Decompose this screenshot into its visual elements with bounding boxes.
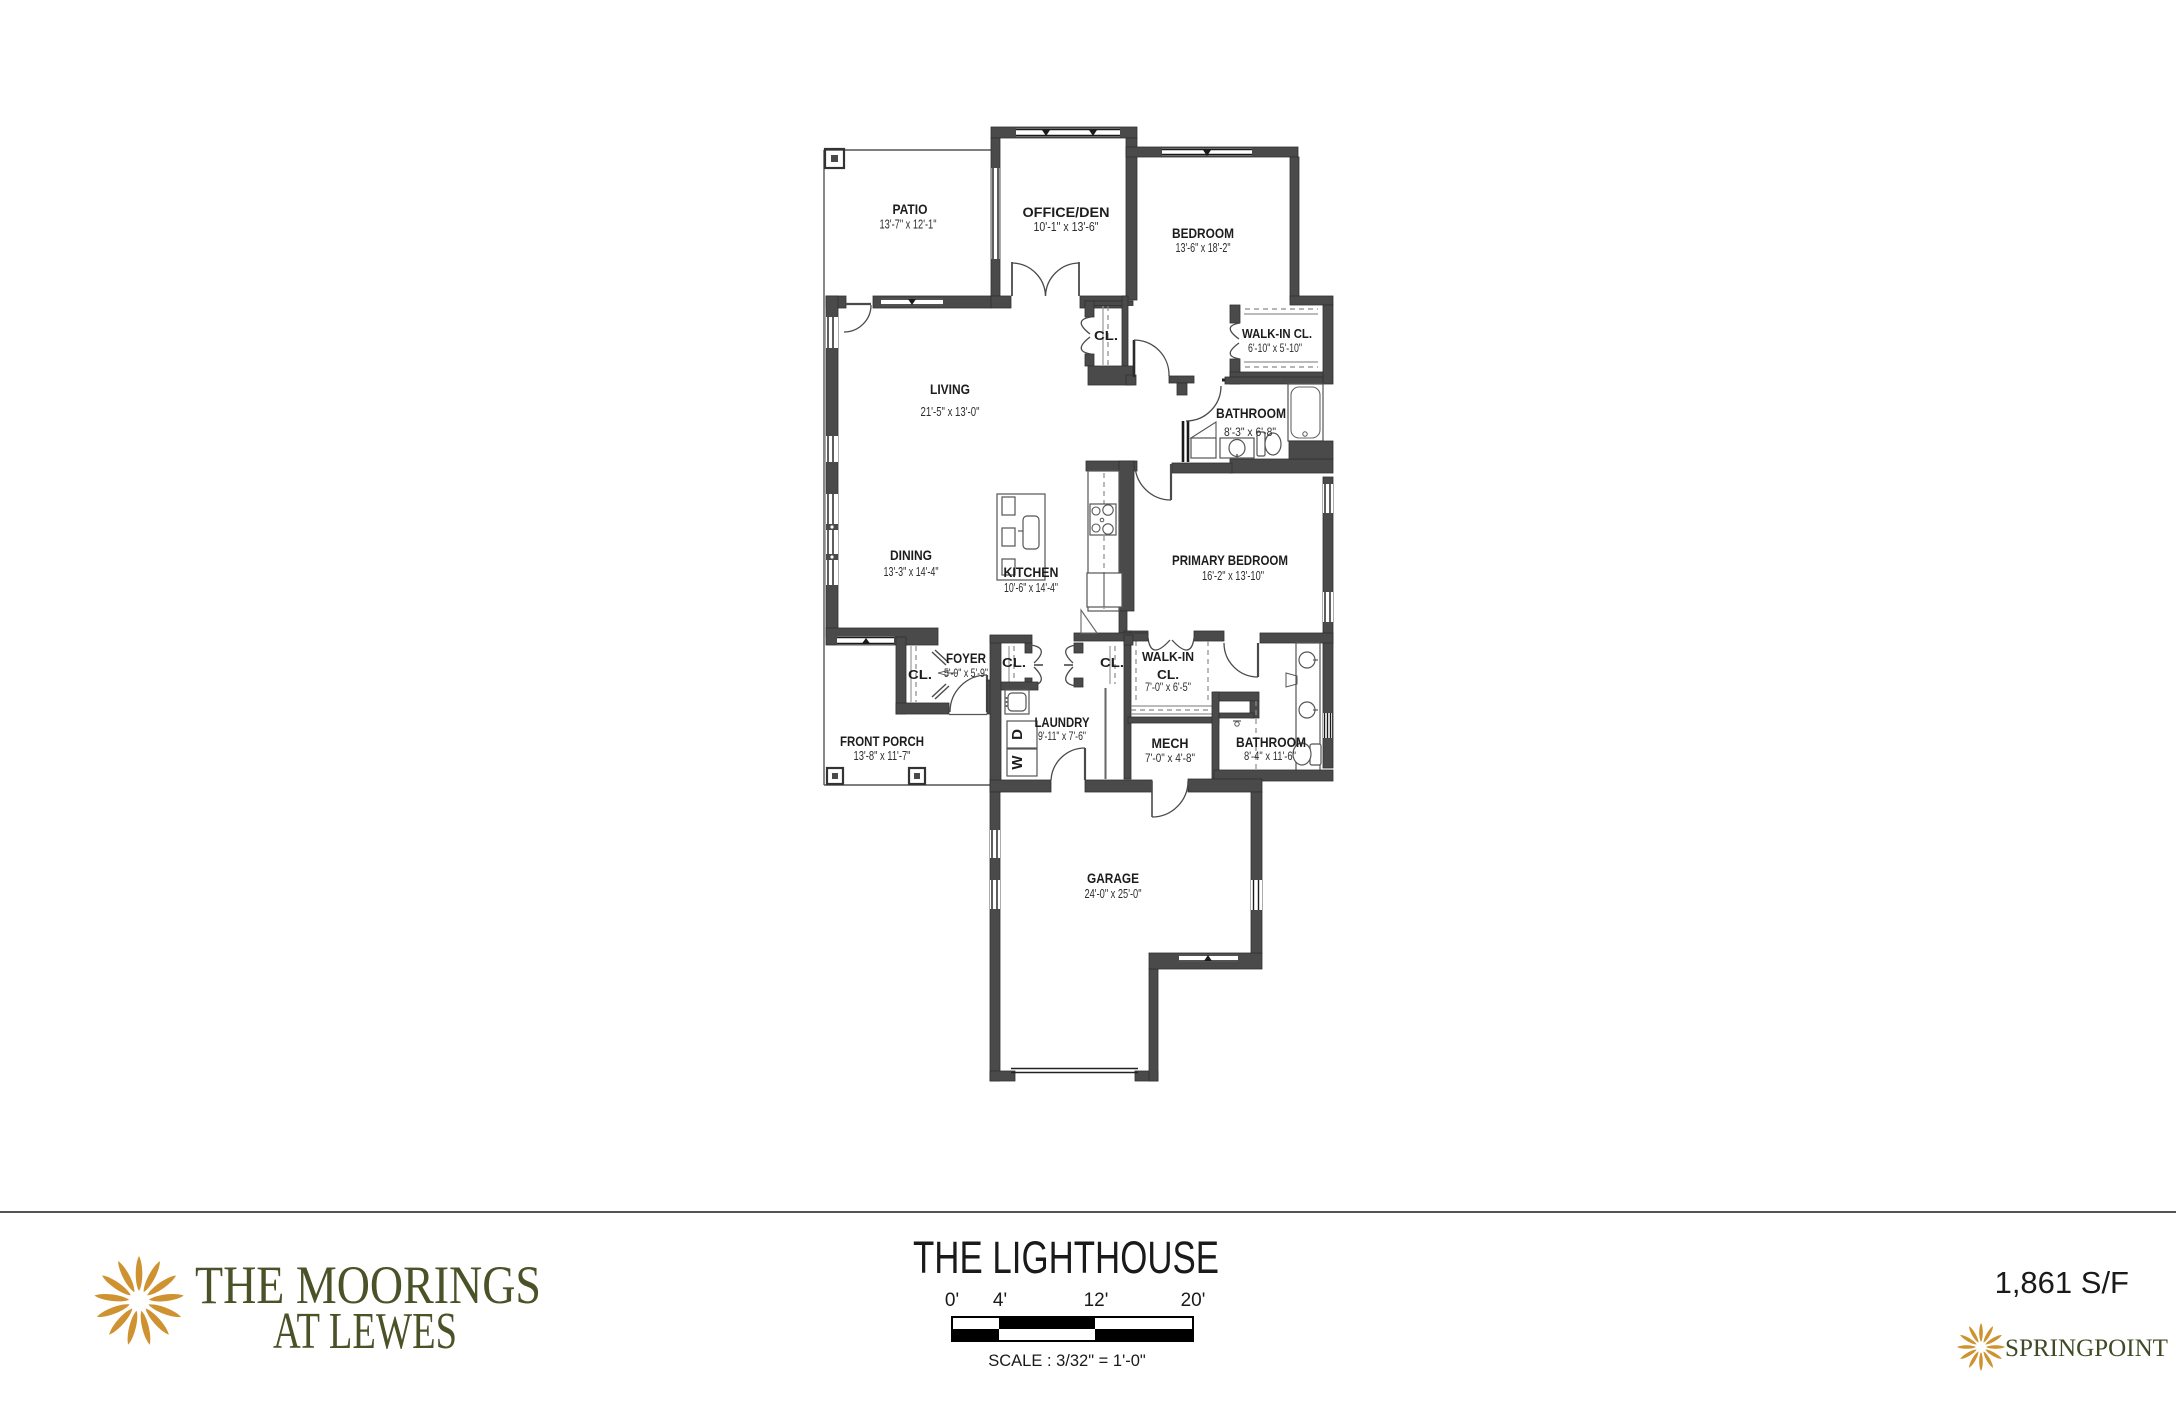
- svg-text:1,861 S/F: 1,861 S/F: [1995, 1265, 2129, 1300]
- svg-text:PRIMARY BEDROOM: PRIMARY BEDROOM: [1172, 552, 1288, 568]
- svg-text:12': 12': [1084, 1290, 1109, 1311]
- svg-text:CL.: CL.: [1094, 328, 1118, 343]
- svg-text:KITCHEN: KITCHEN: [1004, 564, 1059, 580]
- svg-text:BATHROOM: BATHROOM: [1216, 405, 1286, 421]
- svg-text:CL.: CL.: [1002, 655, 1026, 670]
- svg-text:BATHROOM: BATHROOM: [1236, 734, 1306, 750]
- svg-text:THE LIGHTHOUSE: THE LIGHTHOUSE: [913, 1232, 1219, 1283]
- svg-text:D: D: [1009, 729, 1026, 740]
- svg-text:FOYER: FOYER: [946, 650, 986, 666]
- svg-text:7'-0" x 4'-8": 7'-0" x 4'-8": [1145, 751, 1195, 765]
- svg-text:SPRINGPOINT: SPRINGPOINT: [2005, 1335, 2168, 1362]
- svg-text:13'-6" x 18'-2": 13'-6" x 18'-2": [1176, 240, 1231, 255]
- svg-text:OFFICE/DEN: OFFICE/DEN: [1023, 204, 1110, 220]
- svg-text:21'-5" x 13'-0": 21'-5" x 13'-0": [921, 404, 980, 419]
- svg-text:9'-11" x 7'-6": 9'-11" x 7'-6": [1038, 729, 1086, 743]
- svg-text:MECH: MECH: [1152, 735, 1189, 751]
- svg-text:CL.: CL.: [1100, 655, 1124, 670]
- svg-text:WALK-IN: WALK-IN: [1142, 649, 1194, 664]
- svg-text:24'-0" x 25'-0": 24'-0" x 25'-0": [1085, 886, 1142, 901]
- svg-text:13'-7" x 12'-1": 13'-7" x 12'-1": [880, 217, 937, 232]
- svg-text:LAUNDRY: LAUNDRY: [1035, 714, 1091, 730]
- svg-text:10'-6" x 14'-4": 10'-6" x 14'-4": [1004, 580, 1058, 595]
- svg-text:SCALE : 3/32" = 1'-0": SCALE : 3/32" = 1'-0": [988, 1352, 1146, 1370]
- svg-text:16'-2" x 13'-10": 16'-2" x 13'-10": [1202, 568, 1264, 583]
- svg-text:7'-0" x 6'-5": 7'-0" x 6'-5": [1145, 680, 1191, 694]
- svg-text:13'-3" x 14'-4": 13'-3" x 14'-4": [884, 564, 939, 579]
- svg-text:8'-4" x 11'-6": 8'-4" x 11'-6": [1244, 749, 1296, 763]
- svg-text:WALK-IN CL.: WALK-IN CL.: [1242, 326, 1312, 341]
- svg-text:LIVING: LIVING: [930, 381, 970, 397]
- svg-text:W: W: [1009, 755, 1026, 770]
- svg-text:GARAGE: GARAGE: [1087, 870, 1139, 886]
- svg-text:FRONT PORCH: FRONT PORCH: [840, 733, 924, 749]
- svg-text:BEDROOM: BEDROOM: [1172, 225, 1234, 241]
- svg-text:6'-10" x 5'-10": 6'-10" x 5'-10": [1248, 341, 1302, 355]
- svg-text:20': 20': [1181, 1290, 1206, 1311]
- svg-text:8'-3" x 6'-8": 8'-3" x 6'-8": [1224, 425, 1276, 439]
- svg-text:CL.: CL.: [908, 667, 932, 682]
- svg-text:0': 0': [945, 1290, 959, 1311]
- svg-text:4': 4': [993, 1290, 1007, 1311]
- svg-text:DINING: DINING: [890, 547, 932, 563]
- svg-text:PATIO: PATIO: [893, 201, 928, 217]
- svg-text:10'-1" x 13'-6": 10'-1" x 13'-6": [1034, 219, 1099, 234]
- svg-text:AT LEWES: AT LEWES: [273, 1303, 457, 1360]
- svg-text:13'-8" x 11'-7": 13'-8" x 11'-7": [854, 748, 911, 763]
